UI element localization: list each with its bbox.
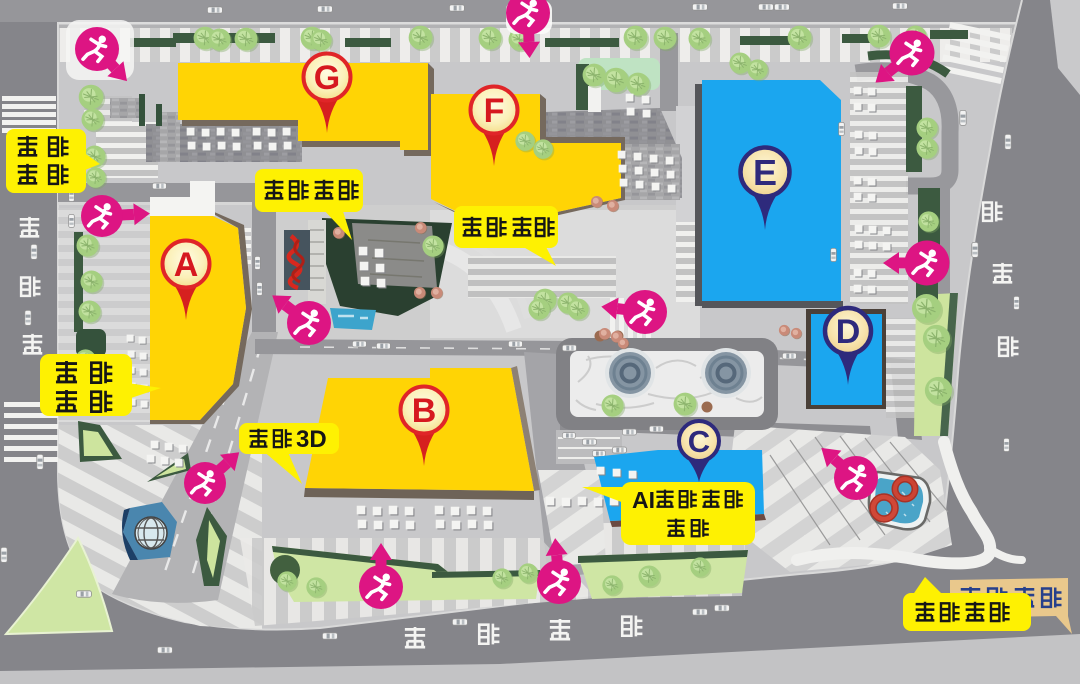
svg-text:AI: AI xyxy=(632,487,655,513)
svg-text:C: C xyxy=(688,424,710,459)
svg-text:B: B xyxy=(412,392,437,430)
svg-text:E: E xyxy=(753,152,777,193)
svg-text:3D: 3D xyxy=(296,426,327,453)
svg-text:F: F xyxy=(484,92,505,130)
svg-text:A: A xyxy=(174,246,199,284)
svg-text:G: G xyxy=(314,59,340,97)
svg-text:D: D xyxy=(836,313,861,351)
